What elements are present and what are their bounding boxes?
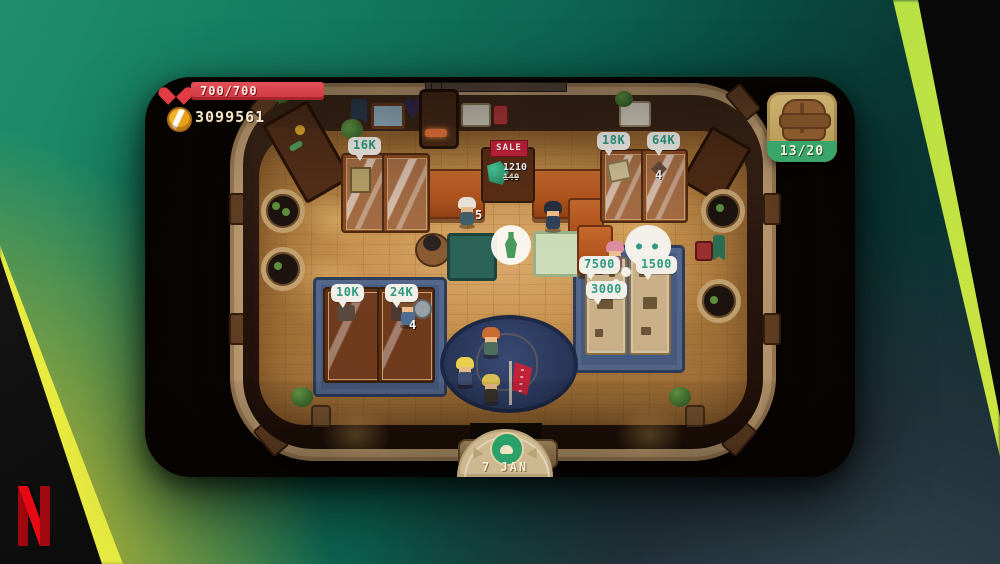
lamp-glow xyxy=(615,407,685,463)
pot xyxy=(423,235,441,251)
wall-poster xyxy=(461,103,491,127)
round-window xyxy=(261,247,305,291)
round-window xyxy=(701,189,745,233)
backpack-icon xyxy=(782,99,826,141)
sale-price-old: 140 xyxy=(503,173,527,183)
netflix-logo-right-bar xyxy=(40,486,50,546)
coin-icon xyxy=(167,107,192,132)
date-text: 7 JAN xyxy=(457,460,553,474)
character-orange-hair xyxy=(481,327,501,357)
price-bubble-3000: 3000 xyxy=(586,281,627,299)
furnace xyxy=(419,89,459,149)
barrel xyxy=(685,405,705,427)
counter-mat-teal xyxy=(447,233,497,281)
plant xyxy=(291,387,313,407)
sale-price-new: 1210 xyxy=(503,162,527,173)
price-bubble-1500: 1500 xyxy=(636,256,677,274)
sale-sign: SALE xyxy=(490,140,528,157)
book-item xyxy=(350,167,371,193)
backpack-button[interactable]: 13/20 xyxy=(767,92,837,162)
price-bubble-18k: 18K xyxy=(597,132,630,150)
character-shopkeeper xyxy=(457,197,477,227)
stage: SALE 1210 140 xyxy=(0,0,1000,564)
character-npc-blonde xyxy=(481,374,501,404)
sale-price: 1210 140 xyxy=(503,163,527,183)
stack-count-64k: 4 xyxy=(655,168,662,182)
wall-shield xyxy=(695,241,713,261)
price-bubble-24k: 24K xyxy=(385,284,418,302)
moon-icon xyxy=(500,445,513,454)
character-customer-dark xyxy=(543,201,563,231)
plant xyxy=(669,387,691,407)
plant xyxy=(615,91,633,107)
price-bubble-16k: 16K xyxy=(348,137,381,155)
wood-beam xyxy=(763,313,781,345)
wall-poster-red xyxy=(493,105,508,125)
placement-marker xyxy=(491,225,531,265)
price-bubble-64k: 64K xyxy=(647,132,680,150)
character-hero xyxy=(455,357,475,387)
netflix-logo-icon xyxy=(18,486,50,546)
counter-mat-pale xyxy=(533,231,581,277)
stack-count-carried: 5 xyxy=(475,208,482,222)
round-window xyxy=(261,189,305,233)
coin-count: 3099561 xyxy=(195,108,265,126)
heart-icon xyxy=(165,80,187,100)
display-case-empty xyxy=(382,153,430,233)
sale-display-table: SALE 1210 140 xyxy=(481,147,535,203)
price-bubble-7500: 7500 xyxy=(579,256,620,274)
health-bar: 700/700 xyxy=(191,82,324,100)
plant xyxy=(341,119,363,139)
game-viewport[interactable]: SALE 1210 140 xyxy=(145,77,855,477)
stack-count-24k: 4 xyxy=(409,318,416,332)
price-bubble-10k: 10K xyxy=(331,284,364,302)
carried-sack xyxy=(413,299,432,319)
person-silhouette-icon xyxy=(505,232,517,258)
round-window xyxy=(697,279,741,323)
furnace-fire xyxy=(425,129,447,137)
lamp-glow xyxy=(321,407,391,463)
wood-beam xyxy=(763,193,781,225)
wall-painting xyxy=(371,103,405,129)
display-case-64k xyxy=(641,149,688,223)
inventory-count: 13/20 xyxy=(767,141,837,162)
